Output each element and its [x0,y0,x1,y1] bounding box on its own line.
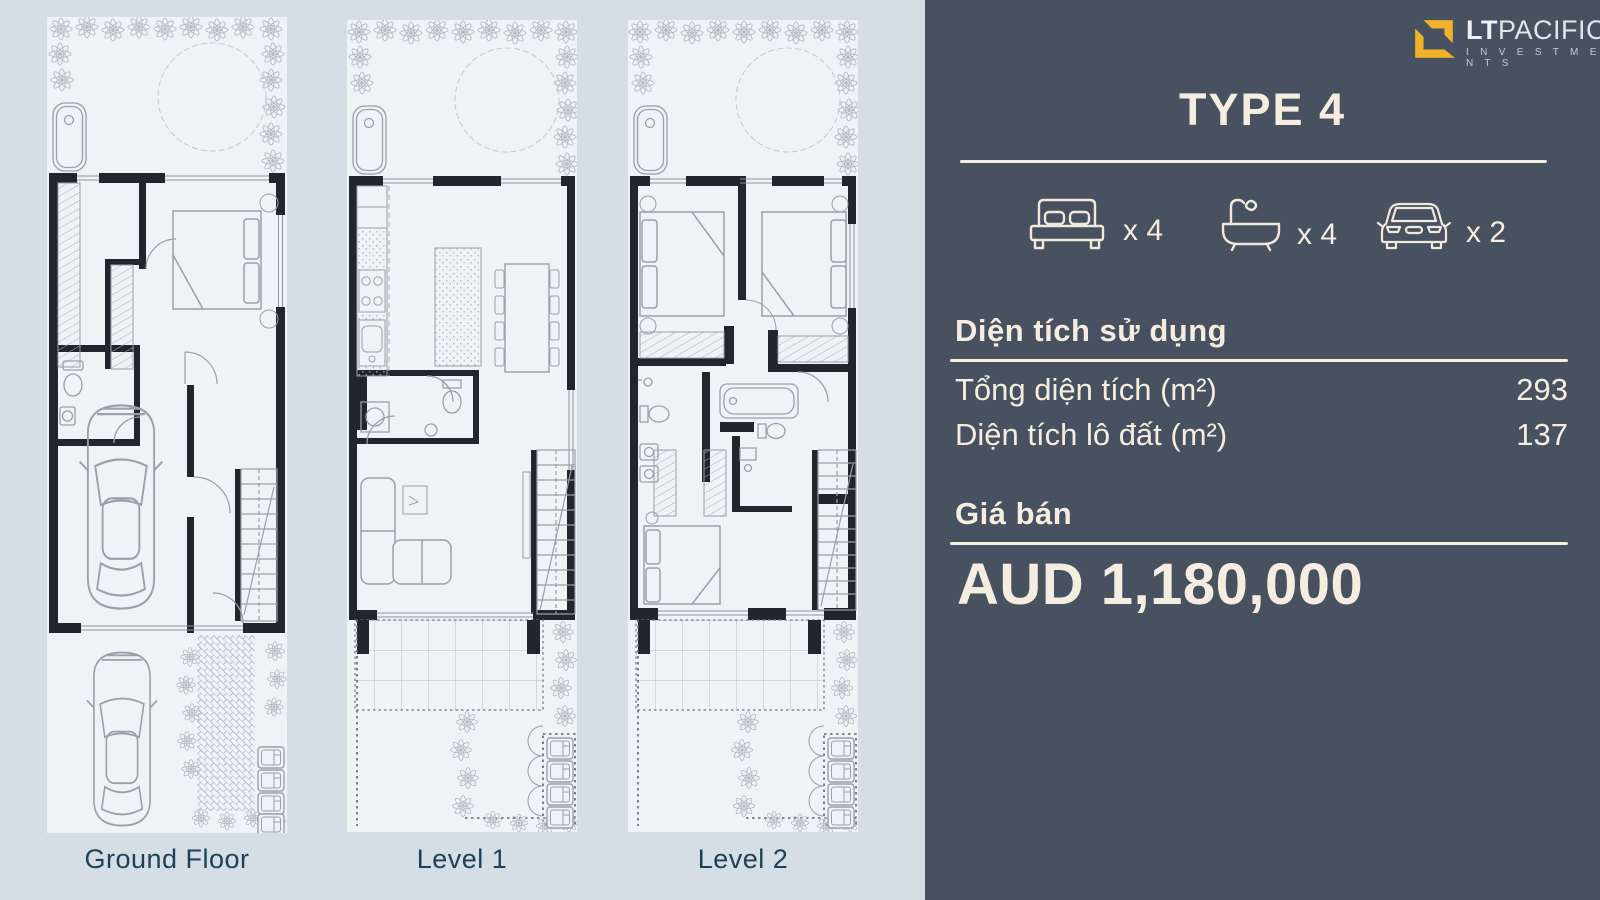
plan-label-ground-floor: Ground Floor [47,844,287,876]
garage-car [80,405,163,608]
plan-label-level-1: Level 1 [347,844,577,876]
lot-area-label: Diện tích lô đất (m²) [955,417,1227,453]
dining [495,264,559,372]
logo-bracket-icon [1411,16,1457,67]
logo: LTPACIFIC I N V E S T M E N T S [1411,16,1600,69]
logo-subtitle: I N V E S T M E N T S [1466,47,1600,69]
garden [348,20,577,175]
stairs [241,469,277,621]
total-area-label: Tổng diện tích (m²) [955,372,1217,408]
side-table [403,486,427,514]
bath-icon [1219,196,1283,254]
feature-cars: x 2 [1376,196,1506,252]
garden-bath [353,106,386,174]
bed-1 [640,212,724,316]
feature-bedrooms: x 4 [1025,196,1163,250]
island [435,248,481,366]
garden [49,17,285,172]
price-value: AUD 1,180,000 [957,551,1363,618]
sofa [361,478,451,584]
deck [355,620,543,710]
car-count: x 2 [1466,216,1506,252]
car-icon [1376,196,1452,252]
kitchen [357,186,481,376]
wc [361,376,461,444]
garden-bath [53,103,86,171]
deck [636,620,824,710]
level2-plan [628,20,858,832]
bins [828,738,854,828]
page-title: TYPE 4 [925,84,1600,136]
ground-floor-plan [47,17,287,833]
area-divider [950,359,1568,362]
feature-bathrooms: x 4 [1219,196,1337,254]
closet-1 [654,450,676,516]
level1-plan [347,20,577,832]
title-divider [960,160,1547,163]
price-section-heading: Giá bán [955,496,1072,532]
bed [173,211,261,309]
bathroom [60,361,140,443]
driveway-car [87,653,157,826]
brick-path [197,635,255,811]
bed-icon [1025,196,1109,250]
bins [547,738,573,828]
storage-doors [809,726,824,816]
wardrobe-1 [640,332,724,358]
total-area-row: Tổng diện tích (m²) 293 [955,372,1568,408]
total-area-value: 293 [1516,372,1568,408]
lot-area-row: Diện tích lô đất (m²) 137 [955,417,1568,453]
tree [455,48,559,152]
plan-label-level-2: Level 2 [628,844,858,876]
tree [158,43,266,151]
bed-2 [762,212,846,316]
price-divider [950,542,1568,545]
bins [258,747,284,833]
tree [736,48,840,152]
tv-unit [523,472,530,558]
bed-count: x 4 [1123,214,1163,250]
area-section-heading: Diện tích sử dụng [955,313,1227,349]
lot-area-value: 137 [1516,417,1568,453]
info-panel: LTPACIFIC I N V E S T M E N T S TYPE 4 x… [925,0,1600,900]
bed-3 [644,526,720,604]
garden [629,20,858,175]
closet-2 [704,450,726,516]
bath-count: x 4 [1297,218,1337,254]
closet [58,183,80,367]
logo-name: LTPACIFIC [1466,16,1600,44]
garden-bath [634,106,667,174]
storage-doors [528,726,543,816]
wardrobe-2 [778,336,848,362]
wardrobe [111,265,133,369]
